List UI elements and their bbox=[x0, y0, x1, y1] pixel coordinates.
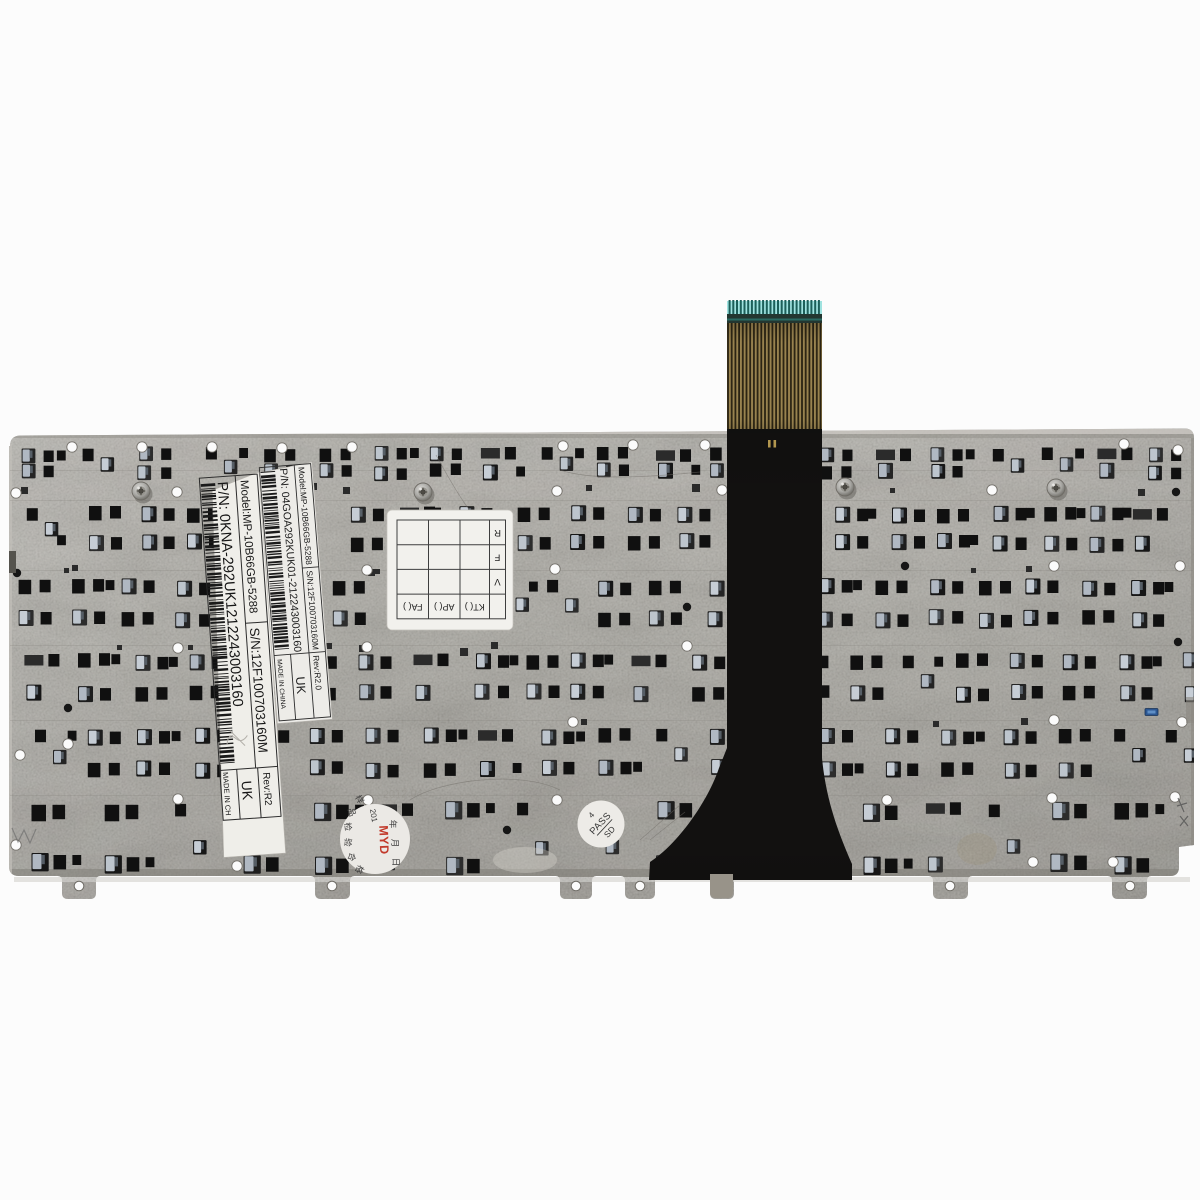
svg-text:R: R bbox=[494, 527, 501, 538]
svg-text:AP( ): AP( ) bbox=[434, 602, 455, 612]
svg-text:年: 年 bbox=[388, 820, 398, 829]
svg-text:KT( ): KT( ) bbox=[465, 602, 485, 612]
svg-text:UK: UK bbox=[239, 780, 256, 801]
svg-text:检: 检 bbox=[343, 822, 354, 832]
svg-text:月: 月 bbox=[390, 839, 400, 848]
svg-text:日: 日 bbox=[391, 858, 401, 867]
svg-text:V: V bbox=[494, 576, 501, 587]
svg-text:UK: UK bbox=[293, 676, 308, 695]
svg-text:Rev:R2: Rev:R2 bbox=[260, 772, 273, 806]
svg-text:MYD: MYD bbox=[376, 825, 391, 855]
svg-text:验: 验 bbox=[343, 838, 354, 848]
svg-text:2012.04: 2012.04 bbox=[383, 788, 423, 801]
svg-text:F: F bbox=[494, 552, 500, 563]
svg-text:FA( ): FA( ) bbox=[403, 602, 423, 612]
